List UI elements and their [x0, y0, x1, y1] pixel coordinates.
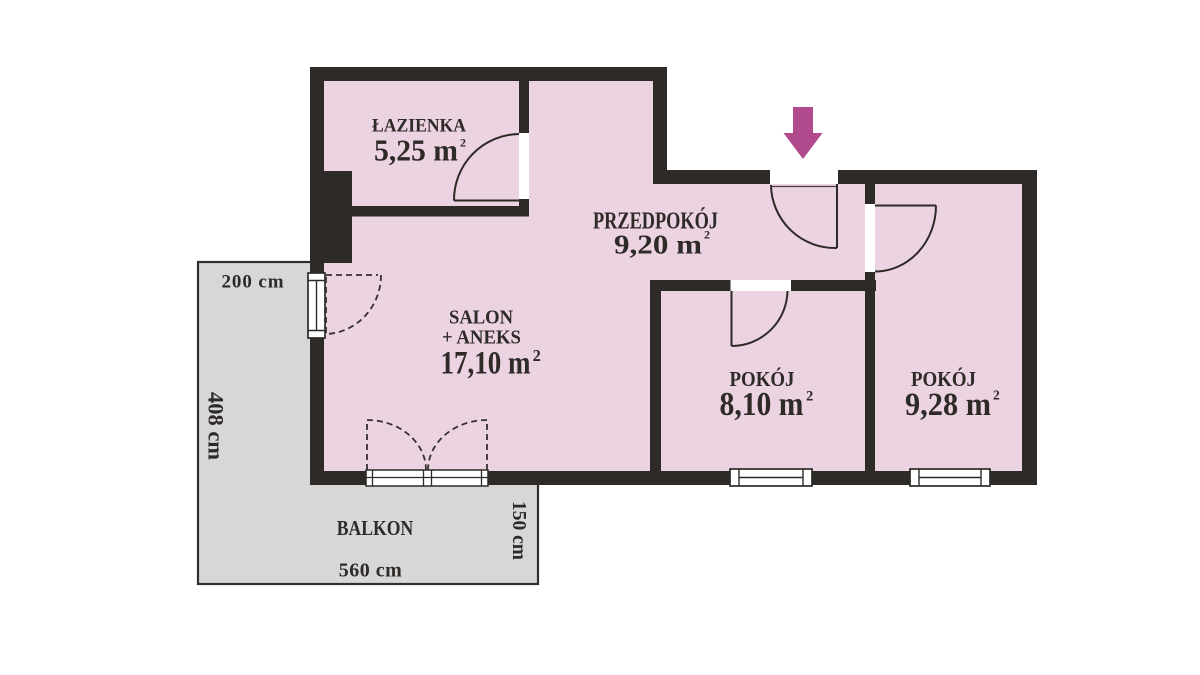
- svg-text:BALKON: BALKON: [337, 516, 414, 540]
- svg-text:9,28 m: 9,28 m: [905, 387, 991, 423]
- svg-text:5,25 m: 5,25 m: [374, 133, 458, 168]
- svg-text:8,10 m: 8,10 m: [720, 386, 804, 423]
- svg-text:200 cm: 200 cm: [222, 272, 285, 293]
- svg-text:2: 2: [993, 388, 1000, 403]
- svg-text:560 cm: 560 cm: [339, 560, 403, 582]
- svg-text:17,10 m: 17,10 m: [441, 346, 531, 382]
- svg-text:408 cm: 408 cm: [204, 392, 229, 460]
- svg-text:9,20 m: 9,20 m: [614, 230, 703, 260]
- svg-text:2: 2: [806, 389, 813, 405]
- svg-text:SALON: SALON: [449, 307, 514, 329]
- svg-text:2: 2: [533, 346, 541, 365]
- svg-text:150 cm: 150 cm: [508, 501, 529, 560]
- svg-text:2: 2: [704, 228, 710, 242]
- svg-text:2: 2: [460, 136, 466, 150]
